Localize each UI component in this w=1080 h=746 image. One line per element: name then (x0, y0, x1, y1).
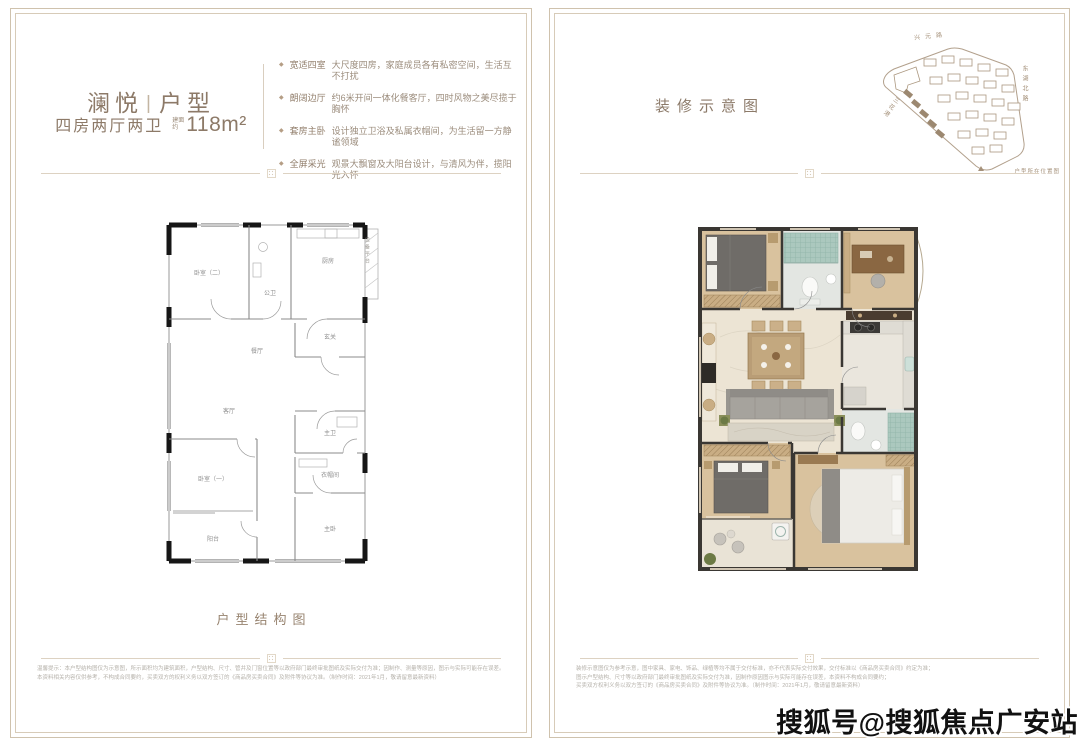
room-label-bedroom2: 卧室（二） (194, 269, 224, 277)
decor-plan-title: 装修示意图 (608, 95, 812, 116)
ornament-divider (580, 169, 1039, 178)
divider-ornament-icon (267, 654, 276, 663)
room-label-bath-public: 公卫 (264, 290, 276, 297)
structural-floorplan: 卧室（二） 公卫 厨房 玄关 餐厅 客厅 主卫 衣帽间 主卧 卧室（一） 阳台 … (157, 211, 387, 591)
feature-desc: 约6米开间一体化餐客厅，四时风物之美尽揽于胸怀 (332, 93, 519, 115)
layout-text: 四房两厅两卫 (55, 112, 163, 136)
feature-desc: 大尺度四房，家庭成员各有私密空间，生活互不打扰 (332, 60, 519, 82)
sohu-watermark: 搜狐号@搜狐焦点广安站 (776, 701, 1078, 740)
structural-plan-caption: 户型结构图 (11, 609, 517, 628)
divider-ornament-icon (805, 654, 814, 663)
area-value: 118m² (186, 113, 246, 137)
brochure-canvas: 澜悦|户型 四房两厅两卫 建面 约 118m² ◆ 宽适四室 大尺度四房，家庭成… (0, 0, 1080, 746)
room-label-bath-master: 主卫 (324, 429, 336, 437)
furnished-floorplan-drawing (690, 217, 930, 597)
road-label-right: 东湖北路 (1020, 65, 1029, 105)
divider-ornament-icon (267, 169, 276, 178)
disclaimer-line: 温馨提示：本户型结构图仅为示意图，所示面积均为建筑面积，户型结构、尺寸、管井及门… (37, 666, 509, 673)
unit-subtitle: 四房两厅两卫 建面 约 118m² (29, 112, 273, 137)
site-location-map: 兴元路 东湖北路 三花港 户型所在位置图 (860, 19, 1060, 179)
feature-tag: 朗阔边厅 (290, 93, 326, 115)
area-prefix: 建面 约 (172, 118, 184, 131)
feature-tag: 宽适四室 (290, 60, 326, 82)
room-label-entry: 玄关 (324, 333, 336, 341)
diamond-bullet-icon: ◆ (279, 93, 284, 115)
disclaimer-line: 图示户型结构、尺寸等以政府部门最终审批图纸及实际交付为准，因制作原因图示与实际可… (576, 675, 1047, 682)
room-label-balcony: 阳台 (207, 535, 219, 543)
divider-ornament-icon (805, 169, 814, 178)
disclaimer-line: 本资料相关内容仅供参考，不构成合同要约，买卖双方的权利义务以双方签订的《商品房买… (37, 675, 509, 682)
feature-item: ◆ 朗阔边厅 约6米开间一体化餐客厅，四时风物之美尽揽于胸怀 (279, 93, 519, 115)
ornament-divider (580, 654, 1039, 663)
right-page: 装修示意图 (549, 8, 1070, 738)
feature-item: ◆ 宽适四室 大尺度四房，家庭成员各有私密空间，生活互不打扰 (279, 60, 519, 82)
ornament-divider (41, 654, 501, 663)
room-label-equipment: 设备平台 (364, 237, 371, 297)
disclaimer-line: 装修示意图仅为参考示意，图中家具、家电、饰品、绿植等均不属于交付标准，亦不代表实… (576, 666, 1047, 673)
header-vertical-divider (263, 64, 264, 149)
left-disclaimer: 温馨提示：本户型结构图仅为示意图，所示面积均为建筑面积，户型结构、尺寸、管井及门… (37, 666, 509, 683)
ornament-divider (41, 169, 501, 178)
right-disclaimer: 装修示意图仅为参考示意，图中家具、家电、饰品、绿植等均不属于交付标准，亦不代表实… (576, 666, 1047, 692)
room-label-cloak: 衣帽间 (321, 471, 339, 479)
disclaimer-line: 买卖双方权利义务以双方签订的《商品房买卖合同》及附件等协议为准。（制作时间：20… (576, 683, 1047, 690)
room-label-bedroom1: 卧室（一） (198, 475, 228, 483)
room-label-living: 客厅 (223, 407, 235, 415)
feature-desc: 设计独立卫浴及私属衣帽间，为生活留一方静谧领域 (332, 126, 519, 148)
diamond-bullet-icon: ◆ (279, 126, 284, 148)
area-prefix-bottom: 约 (172, 125, 184, 132)
feature-item: ◆ 套房主卧 设计独立卫浴及私属衣帽间，为生活留一方静谧领域 (279, 126, 519, 148)
furnished-floorplan (690, 217, 930, 597)
left-page: 澜悦|户型 四房两厅两卫 建面 约 118m² ◆ 宽适四室 大尺度四房，家庭成… (10, 8, 532, 738)
diamond-bullet-icon: ◆ (279, 60, 284, 82)
room-label-kitchen: 厨房 (322, 257, 334, 265)
room-label-master: 主卧 (324, 525, 336, 533)
feature-tag: 套房主卧 (290, 126, 326, 148)
room-label-dining: 餐厅 (251, 347, 263, 355)
structural-floorplan-drawing: 卧室（二） 公卫 厨房 玄关 餐厅 客厅 主卫 衣帽间 主卧 卧室（一） 阳台 (157, 211, 387, 591)
